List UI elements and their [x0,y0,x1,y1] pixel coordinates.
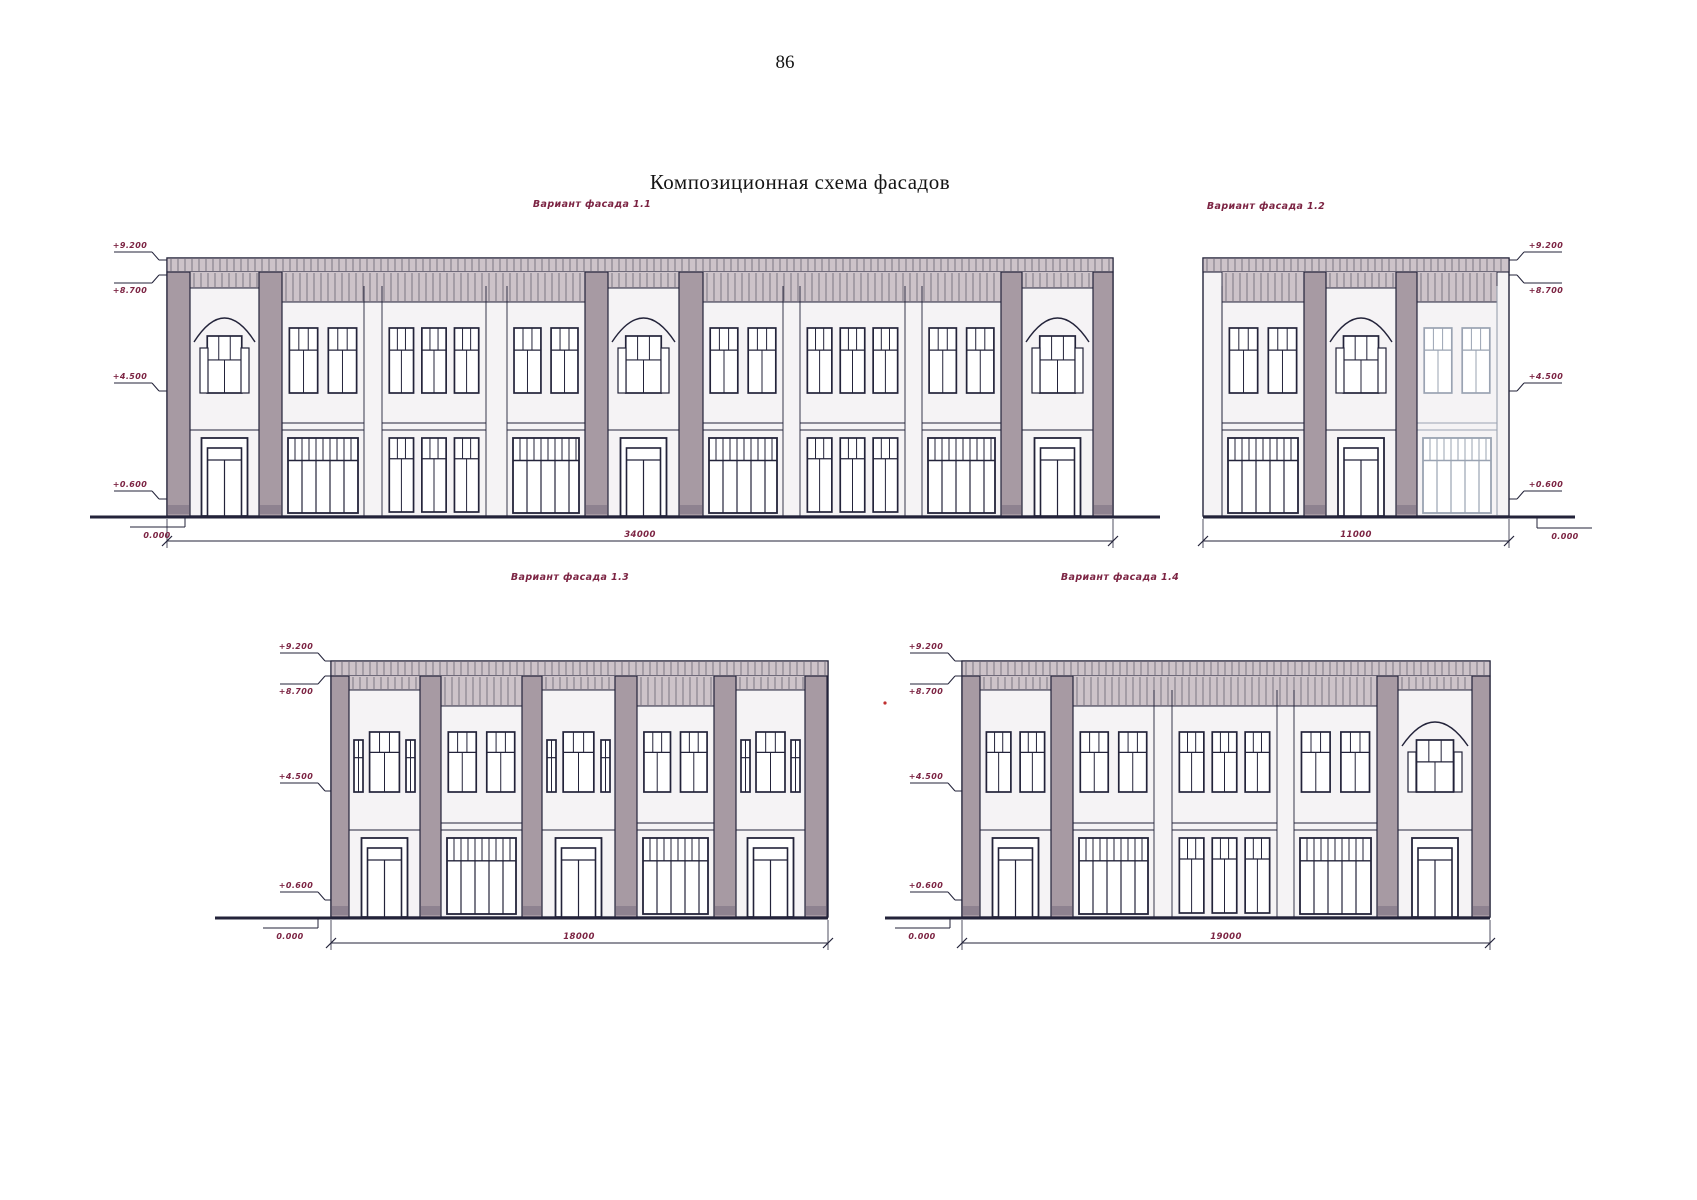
elevation-mark: +4.500 [113,372,167,391]
elevation-mark-value: +9.200 [1529,241,1563,250]
elevation-mark: 0.000 [1537,518,1592,541]
elevation-mark: +9.200 [279,642,331,661]
elevation-mark: +9.200 [1509,241,1563,260]
dimension: 18000 [326,920,833,950]
dimension-value: 19000 [1210,932,1242,942]
dimension-value: 34000 [624,530,656,540]
elevation-mark: +0.600 [279,881,331,900]
dimension: 19000 [957,920,1495,950]
elevation-mark: +8.700 [279,676,331,696]
page-number: 86 [710,52,860,74]
elevation-mark: +0.600 [113,480,167,499]
elevation-mark-value: 0.000 [143,531,170,540]
elevation-mark: +8.700 [1509,275,1563,295]
page-title: Композиционная схема фасадов [590,170,1010,195]
elevation-mark-value: +9.200 [279,642,313,651]
scan-artifact-dot [883,701,886,704]
drawing-sheet: 34000+9.200+8.700+4.500+0.6000.000Вариан… [0,0,1697,1200]
elevation-mark-value: +0.600 [909,881,943,890]
dimension: 11000 [1198,519,1514,548]
elevation-mark: +8.700 [909,676,962,696]
dimension-value: 11000 [1340,530,1372,540]
elevation-mark-value: +8.700 [909,687,943,696]
elevation-mark: +8.700 [113,275,167,295]
elevation-mark-value: +4.500 [909,772,943,781]
elevation-mark: 0.000 [263,918,318,941]
facade-1-1: 34000+9.200+8.700+4.500+0.6000.000Вариан… [90,199,1160,548]
elevation-mark-value: 0.000 [908,932,935,941]
elevation-mark: +4.500 [279,772,331,791]
elevation-mark-value: +9.200 [113,241,147,250]
elevation-mark: 0.000 [895,918,950,941]
elevation-mark-value: +4.500 [1529,372,1563,381]
dimension: 34000 [162,519,1118,548]
elevation-mark-value: +0.600 [113,480,147,489]
elevation-mark-value: +4.500 [279,772,313,781]
facade-1-2: 11000+9.200+8.700+4.500+0.6000.000Вариан… [1198,201,1592,548]
facade-variant-label: Вариант фасада 1.2 [1207,201,1325,212]
facade-variant-label: Вариант фасада 1.1 [533,199,651,210]
facade-1-4: 19000+9.200+8.700+4.500+0.6000.000Вариан… [883,572,1495,950]
elevation-mark: +4.500 [909,772,962,791]
elevation-mark: +9.200 [909,642,962,661]
elevation-mark: +0.600 [1509,480,1563,499]
facade-variant-label: Вариант фасада 1.4 [1061,572,1179,583]
elevation-mark-value: +9.200 [909,642,943,651]
elevation-mark: +0.600 [909,881,962,900]
elevation-mark: 0.000 [130,517,185,540]
elevation-mark-value: +4.500 [113,372,147,381]
elevation-mark-value: 0.000 [1551,532,1578,541]
elevation-mark: +9.200 [113,241,167,260]
facade-1-3: 18000+9.200+8.700+4.500+0.6000.000Вариан… [215,572,833,950]
facade-variant-label: Вариант фасада 1.3 [511,572,629,583]
elevation-mark-value: +8.700 [113,286,147,295]
elevation-mark-value: +0.600 [1529,480,1563,489]
elevation-mark-value: +8.700 [1529,286,1563,295]
elevation-mark: +4.500 [1509,372,1563,391]
elevation-mark-value: +0.600 [279,881,313,890]
elevation-mark-value: 0.000 [276,932,303,941]
dimension-value: 18000 [563,932,595,942]
elevation-mark-value: +8.700 [279,687,313,696]
